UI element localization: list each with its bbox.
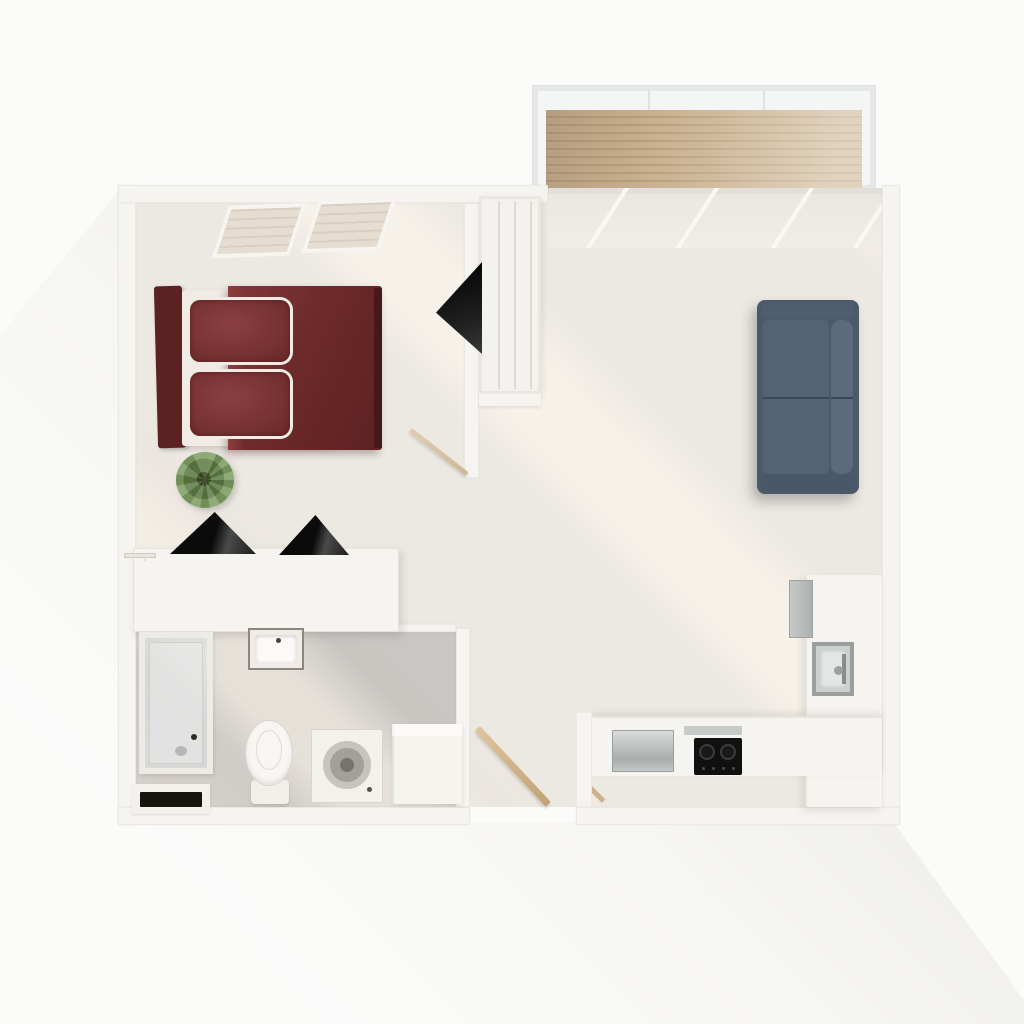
cooktop-control <box>702 767 705 770</box>
potted-plant <box>176 452 234 508</box>
doormat-recess <box>132 784 210 814</box>
door-mullion <box>574 188 637 248</box>
balcony-sliding-glass-door <box>548 188 882 248</box>
bed-footboard <box>374 288 382 448</box>
window-pane <box>212 203 307 258</box>
washer-drum <box>340 758 354 772</box>
bathroom-cabinet <box>392 724 462 804</box>
sofa-seam <box>763 397 829 399</box>
closet-shelving <box>479 196 541 394</box>
burner <box>720 744 736 760</box>
kitchen-sink <box>812 642 854 696</box>
sofa <box>757 300 859 494</box>
shower-stall <box>139 632 213 774</box>
dishwasher-top <box>612 730 674 772</box>
wall-bottom-right <box>576 807 900 825</box>
floorplan-canvas: Studio apartment 3D floor plan (top-down… <box>0 0 1024 1024</box>
door-mullion <box>664 188 727 248</box>
sofa-seats <box>763 320 829 474</box>
sofa-armrest <box>761 475 855 491</box>
bed-pillow <box>190 372 290 436</box>
bed-pillow <box>190 300 290 362</box>
balcony-wood-deck <box>546 110 862 188</box>
shower-glass <box>149 642 203 764</box>
kitchen-counter-end-wall <box>576 712 592 807</box>
bathroom-sink <box>248 628 304 670</box>
cooktop-control <box>732 767 735 770</box>
door-mullion <box>759 188 822 248</box>
sofa-armrest <box>761 303 855 319</box>
toilet <box>243 720 299 806</box>
dresser-drawers <box>139 554 393 626</box>
closet-shelves <box>484 201 536 389</box>
fridge <box>789 580 813 638</box>
wall-right <box>882 185 900 825</box>
sink-tap <box>276 638 281 643</box>
doormat <box>140 792 202 807</box>
sofa-seam <box>831 397 853 399</box>
dresser <box>133 548 399 632</box>
cooktop <box>694 738 742 775</box>
washing-machine <box>311 729 383 803</box>
wall-left <box>118 185 136 825</box>
washer-knob <box>367 787 372 792</box>
sofa-backrest <box>831 320 853 474</box>
drawer-handle <box>124 553 156 558</box>
cooktop-control <box>722 767 725 770</box>
window-pane <box>301 198 396 253</box>
shower-fixture <box>191 734 197 740</box>
drawer <box>139 554 141 556</box>
bedroom-window <box>211 195 403 264</box>
cooktop-control <box>712 767 715 770</box>
shower-drain <box>175 746 187 756</box>
cooktop-back-edge <box>684 726 742 735</box>
double-bed <box>156 284 382 454</box>
door-mullion <box>841 188 882 248</box>
toilet-seat <box>256 730 282 770</box>
closet-ledge <box>479 394 541 406</box>
kitchen-faucet-knob <box>834 666 843 675</box>
burner <box>699 744 715 760</box>
